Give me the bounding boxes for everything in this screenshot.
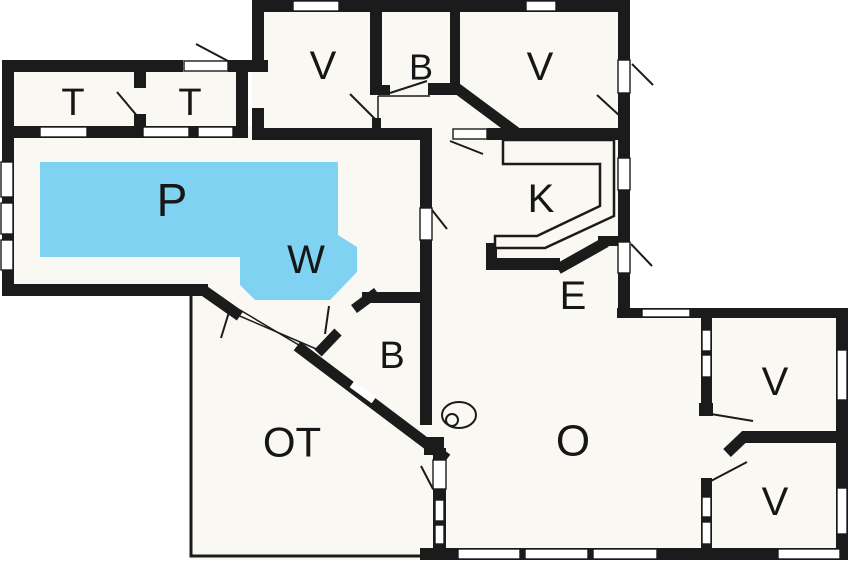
- room-label-toilet-1: T: [61, 82, 84, 124]
- room-label-bath-middle: B: [379, 335, 404, 377]
- window-slot: [837, 488, 847, 534]
- room-label-bath-top: B: [409, 47, 433, 88]
- window-slot: [618, 158, 630, 190]
- window-slot: [642, 309, 690, 317]
- window-slot: [837, 350, 847, 400]
- window-slot: [526, 1, 556, 11]
- door-slot: [40, 127, 87, 137]
- door-slot: [433, 460, 446, 489]
- room-label-kitchen: K: [528, 177, 555, 221]
- window-slot: [593, 549, 657, 559]
- window-slot: [1, 203, 13, 234]
- exterior-door-slot: [184, 61, 228, 71]
- room-label-whirlpool: W: [287, 238, 325, 282]
- floor-plan-canvas: TTVBVPWKEBOTOVV: [0, 0, 848, 565]
- window-slot: [1, 240, 13, 270]
- room-label-toilet-2: T: [178, 82, 201, 124]
- window-slot: [435, 500, 444, 521]
- entrance-door-slot: [618, 242, 630, 273]
- window-slot: [702, 355, 711, 377]
- door-slot: [618, 60, 630, 93]
- door-slot: [143, 127, 189, 137]
- floor-plan: TTVBVPWKEBOTOVV: [0, 0, 848, 565]
- window-slot: [702, 497, 711, 517]
- window-slot: [435, 525, 444, 544]
- door-slot: [198, 127, 233, 137]
- door-slot: [420, 208, 432, 240]
- room-label-bedroom-top-middle: V: [310, 44, 337, 88]
- window-slot: [778, 549, 840, 559]
- room-label-bedroom-right-bottom: V: [762, 480, 789, 524]
- room-label-pool: P: [157, 174, 188, 226]
- window-slot: [702, 522, 711, 544]
- door-slot: [453, 129, 487, 139]
- room-label-bedroom-top-right: V: [527, 45, 554, 89]
- room-label-covered-terrace: OT: [263, 419, 321, 466]
- window-slot: [525, 549, 588, 559]
- window-slot: [702, 330, 711, 351]
- room-label-entry: E: [560, 274, 587, 318]
- window-slot: [458, 549, 520, 559]
- window-slot: [293, 1, 339, 11]
- room-label-living-room: O: [556, 417, 590, 466]
- window-slot: [1, 162, 13, 197]
- room-label-bedroom-right-top: V: [762, 360, 789, 404]
- wall-gap: [248, 72, 252, 126]
